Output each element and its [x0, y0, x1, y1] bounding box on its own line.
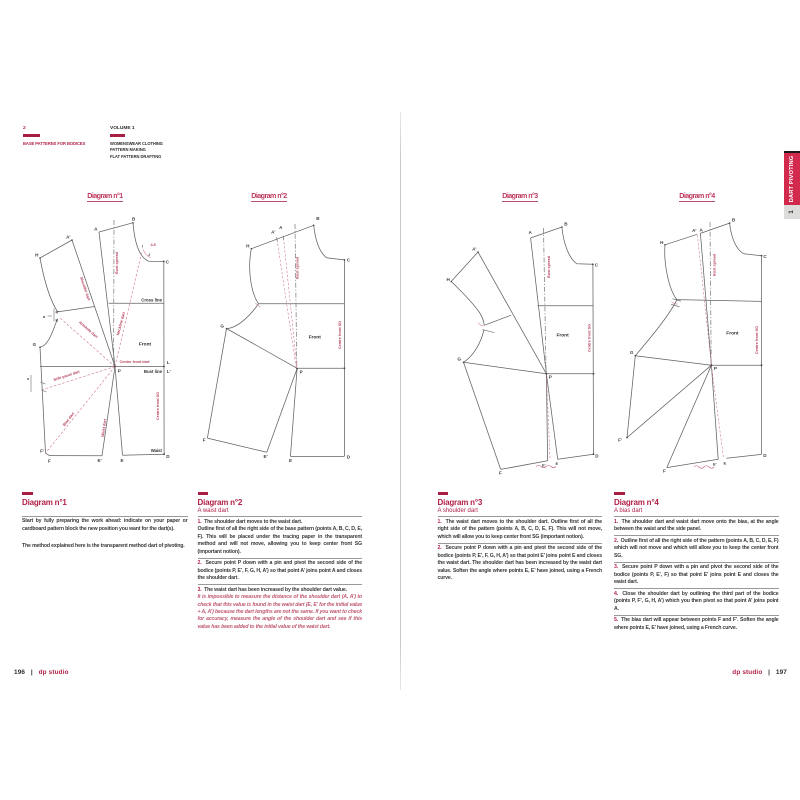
svg-text:Centre front SG: Centre front SG	[338, 321, 342, 349]
svg-text:Bust line: Bust line	[144, 369, 163, 374]
svg-text:F: F	[499, 470, 502, 475]
svg-text:Front: Front	[556, 333, 569, 339]
svg-text:Front: Front	[309, 335, 322, 341]
svg-text:Bust spread: Bust spread	[115, 251, 119, 274]
svg-text:A: A	[528, 230, 532, 235]
svg-text:H: H	[660, 240, 664, 245]
svg-text:L: L	[167, 360, 170, 365]
svg-text:F: F	[663, 468, 666, 473]
svg-text:E': E'	[98, 458, 102, 463]
svg-text:Front: Front	[139, 342, 152, 348]
svg-text:a: a	[43, 314, 46, 319]
svg-text:F': F'	[618, 437, 622, 442]
svg-text:Centre front SG: Centre front SG	[156, 392, 160, 420]
svg-text:B: B	[132, 217, 136, 222]
svg-text:E': E'	[264, 454, 268, 459]
svg-text:H: H	[246, 244, 250, 249]
svg-text:A: A	[94, 227, 98, 232]
svg-text:C: C	[166, 259, 170, 264]
svg-text:4.5: 4.5	[151, 243, 156, 247]
svg-text:A': A'	[472, 247, 476, 252]
svg-text:B: B	[316, 216, 320, 221]
svg-text:P: P	[300, 370, 303, 375]
svg-text:F: F	[203, 438, 206, 443]
svg-text:D: D	[347, 455, 351, 460]
svg-text:H: H	[35, 253, 39, 258]
svg-text:K': K'	[56, 310, 60, 315]
svg-text:K: K	[56, 318, 59, 323]
svg-text:F: F	[48, 458, 51, 463]
svg-text:C: C	[595, 263, 599, 268]
svg-text:Cross line: Cross line	[141, 298, 162, 303]
svg-text:Side panel dart: Side panel dart	[53, 370, 81, 382]
svg-text:B: B	[732, 217, 736, 222]
svg-text:A: A	[279, 225, 283, 230]
svg-text:D: D	[763, 453, 767, 458]
svg-text:A: A	[699, 227, 703, 232]
svg-text:D: D	[595, 454, 599, 459]
svg-text:P: P	[118, 369, 121, 374]
svg-text:A': A'	[66, 235, 70, 240]
svg-text:Bust spread: Bust spread	[713, 253, 717, 276]
svg-text:A': A'	[271, 230, 275, 235]
svg-text:Shoulder dart: Shoulder dart	[79, 276, 91, 301]
svg-text:E: E	[724, 460, 727, 465]
svg-text:Centre front SG: Centre front SG	[755, 326, 759, 354]
svg-text:C: C	[763, 254, 767, 259]
svg-text:E: E	[289, 458, 292, 463]
svg-text:Bust spread: Bust spread	[547, 255, 551, 278]
svg-text:E: E	[121, 458, 124, 463]
svg-text:Center front dart: Center front dart	[120, 360, 151, 364]
svg-text:Waist: Waist	[151, 448, 163, 453]
svg-text:s: s	[27, 376, 30, 381]
svg-text:F': F'	[40, 449, 44, 454]
svg-text:C: C	[347, 258, 351, 263]
svg-text:G: G	[457, 357, 461, 362]
svg-text:E: E	[556, 461, 559, 466]
svg-text:G: G	[220, 323, 224, 328]
svg-text:E': E'	[713, 462, 717, 467]
svg-text:E': E'	[542, 463, 546, 468]
svg-text:B: B	[564, 221, 568, 226]
svg-text:A': A'	[692, 228, 696, 233]
svg-text:J: J	[148, 253, 150, 257]
svg-text:Centre front SG: Centre front SG	[588, 324, 592, 352]
svg-text:G: G	[33, 342, 37, 347]
svg-text:H: H	[446, 277, 450, 282]
svg-text:P: P	[549, 375, 552, 380]
svg-text:Bust spread: Bust spread	[296, 256, 300, 279]
svg-text:Bias dart: Bias dart	[62, 411, 76, 427]
svg-text:L': L'	[167, 369, 171, 374]
svg-text:D: D	[166, 454, 170, 459]
svg-text:Front: Front	[726, 331, 739, 337]
svg-text:P: P	[714, 366, 717, 371]
svg-text:G: G	[630, 350, 634, 355]
svg-text:I: I	[142, 245, 143, 249]
svg-text:Neckline dart: Neckline dart	[116, 311, 126, 336]
